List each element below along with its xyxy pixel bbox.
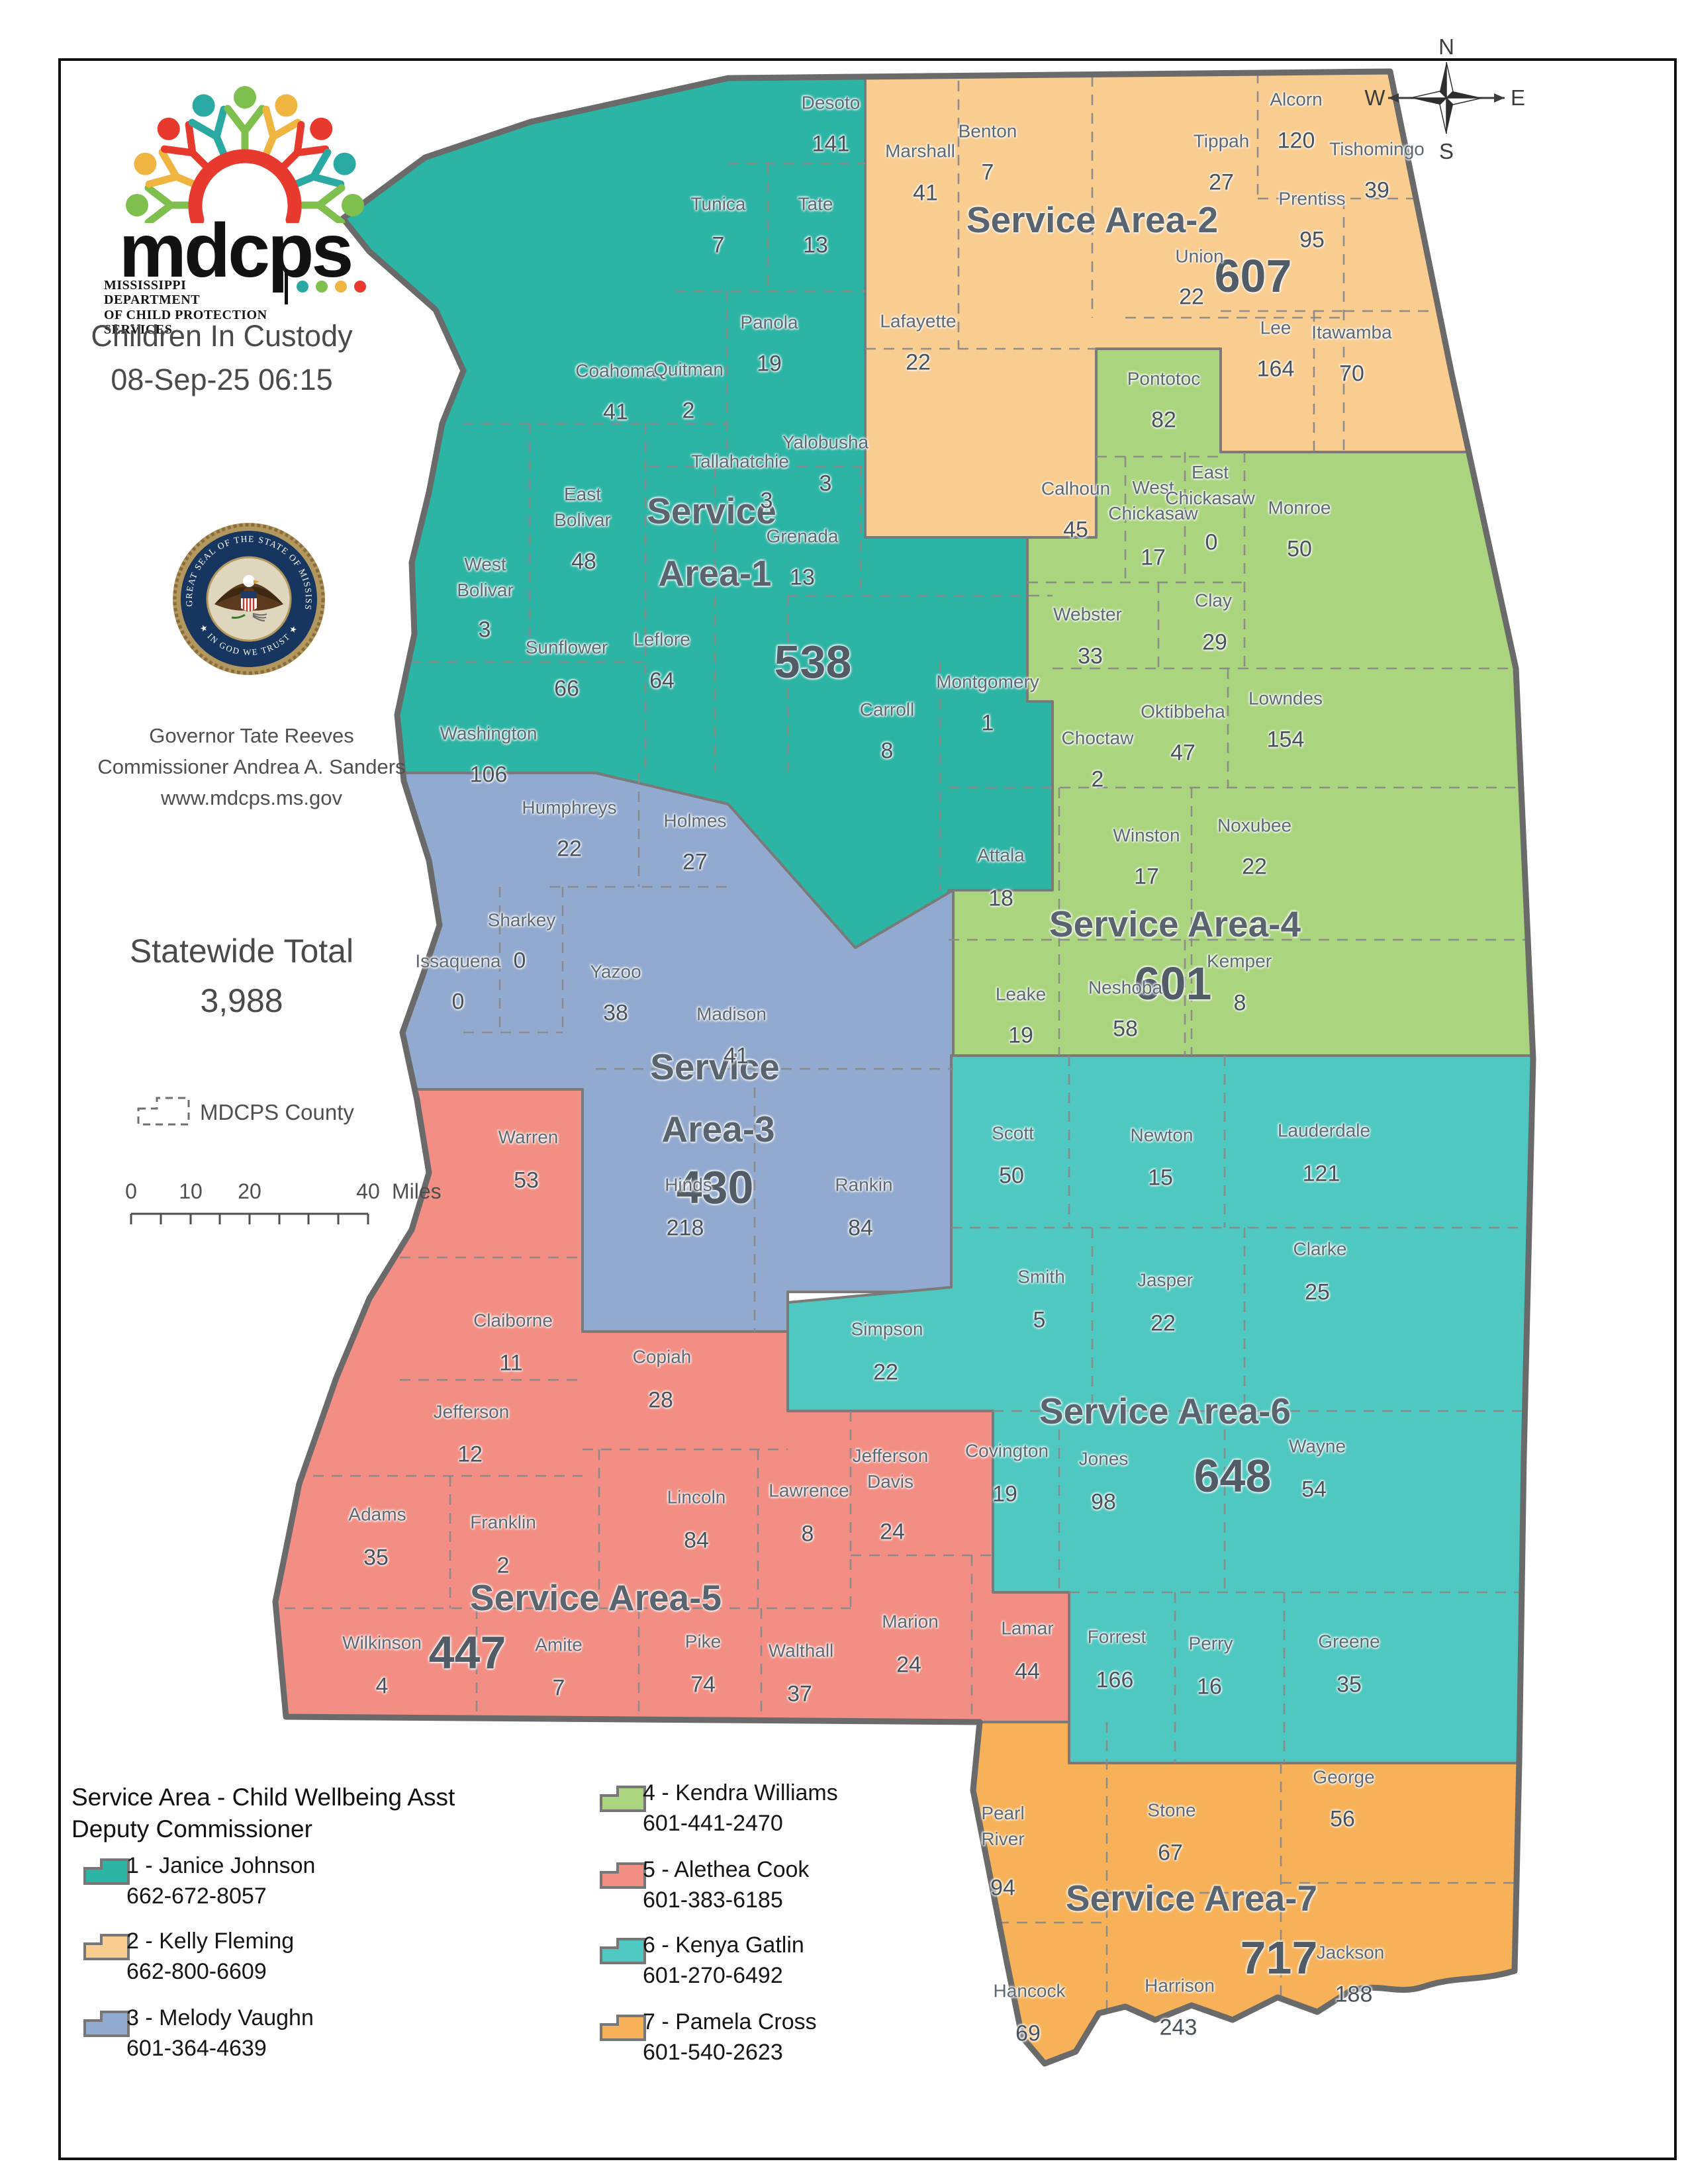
page-title: Children In Custody	[63, 319, 381, 353]
governor-line: Governor Tate Reeves	[60, 720, 444, 751]
compass-w: W	[1364, 85, 1385, 110]
scale-tick-label: 0	[125, 1179, 137, 1204]
mdcps-caption-line1: MISSISSIPPI DEPARTMENT	[104, 278, 283, 308]
legend-item-name: 6 - Kenya Gatlin	[643, 1933, 804, 1958]
legend-swatch	[599, 1784, 647, 1813]
logo-dot	[335, 281, 347, 293]
legend-item-phone: 601-270-6492	[643, 1963, 783, 1989]
logo-dot	[297, 281, 308, 293]
logo-divider	[285, 270, 288, 304]
legend-swatch	[83, 1933, 130, 1962]
legend-item-phone: 601-540-2623	[643, 2040, 783, 2066]
legend-item-phone: 662-800-6609	[126, 1959, 267, 1985]
mdcps-county-symbol	[136, 1095, 191, 1127]
statewide-total-block: Statewide Total 3,988	[63, 927, 420, 1026]
mdcps-logo-sunburst	[89, 61, 400, 223]
page-datetime: 08-Sep-25 06:15	[63, 363, 381, 397]
website-line: www.mdcps.ms.gov	[60, 782, 444, 813]
legend-item-phone: 601-364-4639	[126, 2036, 267, 2062]
legend-swatch	[599, 1861, 647, 1890]
mdcps-county-label: MDCPS County	[200, 1100, 354, 1125]
logo-dots	[297, 281, 366, 293]
compass-s: S	[1439, 139, 1454, 163]
scale-tick-label: 40	[356, 1179, 380, 1204]
legend-item-name: 2 - Kelly Fleming	[126, 1929, 294, 1954]
service-area-7-region	[927, 1722, 1589, 2118]
legend-item-phone: 662-672-8057	[126, 1884, 267, 1909]
page: N S W E ServiceArea-1538Desoto141Tunica7…	[0, 0, 1688, 2184]
statewide-total-value: 3,988	[63, 976, 420, 1026]
legend-swatch	[599, 2013, 647, 2042]
legend-title: Service Area - Child Wellbeing Asst Depu…	[71, 1782, 489, 1845]
scale-bar-ruler	[119, 1206, 397, 1232]
officials-block: Governor Tate Reeves Commissioner Andrea…	[60, 720, 444, 813]
logo-dot	[354, 281, 366, 293]
legend-swatch	[83, 1857, 130, 1886]
legend-item-name: 5 - Alethea Cook	[643, 1857, 809, 1883]
legend-item-phone: 601-383-6185	[643, 1888, 783, 1913]
legend-swatch	[599, 1936, 647, 1966]
commissioner-line: Commissioner Andrea A. Sanders	[60, 751, 444, 782]
scale-tick-label: 10	[179, 1179, 203, 1204]
statewide-total-label: Statewide Total	[63, 927, 420, 976]
legend-item-name: 1 - Janice Johnson	[126, 1853, 315, 1879]
legend-item-name: 7 - Pamela Cross	[643, 2009, 817, 2035]
legend-swatch	[83, 2009, 130, 2038]
legend-item-phone: 601-441-2470	[643, 1811, 783, 1837]
legend-item-name: 4 - Kendra Williams	[643, 1780, 838, 1806]
compass-e: E	[1511, 85, 1525, 110]
logo-dot	[316, 281, 328, 293]
mississippi-state-seal: THE GREAT SEAL OF THE STATE OF MISSISSIP…	[166, 516, 332, 682]
scale-unit-label: Miles	[392, 1179, 442, 1204]
scale-tick-label: 20	[238, 1179, 261, 1204]
legend-item-name: 3 - Melody Vaughn	[126, 2005, 314, 2031]
compass-n: N	[1438, 34, 1454, 59]
logo-person-icon	[228, 86, 262, 159]
